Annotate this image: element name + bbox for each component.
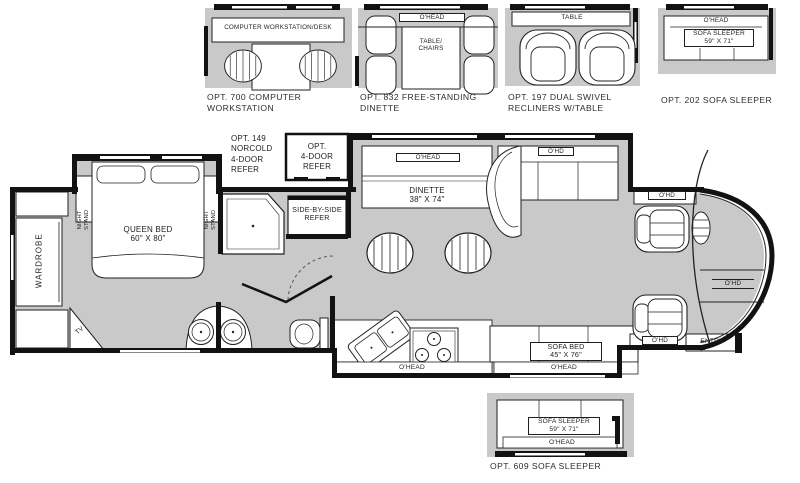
front-ohd-label: O'HD (712, 279, 754, 289)
sofa-bed-label: SOFA BED45" X 76" (530, 342, 602, 361)
opt832-ohead-label: O'HEAD (399, 13, 465, 22)
opt202-ohead-label: O'HEAD (676, 17, 756, 24)
queen-bed-label: QUEEN BED60" X 80" (103, 225, 193, 244)
side-by-side-refer-label: SIDE-BY-SIDEREFER (282, 206, 352, 223)
entry-label: ENTRY (690, 338, 734, 346)
wardrobe-label: WARDROBE (34, 221, 43, 301)
opt149-norcold-label: OPT. 149NORCOLD 4-DOORREFER (231, 134, 272, 176)
opt-202-caption: OPT. 202 SOFA SLEEPER (661, 95, 772, 106)
rv-floorplan-page: OPT. 700 COMPUTERWORKSTATION OPT. 832 FR… (0, 0, 800, 483)
passenger-ohd-label: O'HD (642, 336, 678, 345)
opt-197-caption: OPT. 197 DUAL SWIVELRECLINERS W/TABLE (508, 92, 612, 114)
opt202-sofa-label: SOFA SLEEPER59" X 71" (684, 29, 754, 47)
opt-700-computer-workstation-diagram (204, 4, 352, 90)
opt832-table-label: TABLE/CHAIRS (402, 38, 460, 53)
night-stand-left-label: NIGHTSTAND (77, 202, 91, 238)
opt-700-caption: OPT. 700 COMPUTERWORKSTATION (207, 92, 301, 114)
sofa-bed-ohead-label: O'HEAD (532, 364, 596, 372)
dinette-label: DINETTE38" X 74" (387, 186, 467, 205)
opt-832-caption: OPT. 832 FREE-STANDINGDINETTE (360, 92, 477, 114)
computer-desk-label: COMPUTER WORKSTATION/DESK (213, 24, 343, 31)
kitchen-ohead-label: O'HEAD (380, 364, 444, 372)
opt-609-caption: OPT. 609 SOFA SLEEPER (490, 461, 601, 472)
sofa-ohd-label: O'HD (538, 147, 574, 156)
driver-ohd-label: O'HD (648, 191, 686, 200)
night-stand-right-label: NIGHTSTAND (204, 202, 218, 238)
opt-4door-refer-label: OPT.4-DOORREFER (290, 138, 344, 176)
opt197-table-label: TABLE (515, 14, 629, 22)
dinette-ohead-label: O'HEAD (396, 153, 460, 162)
opt609-ohead-label: O'HEAD (530, 439, 594, 447)
opt609-sofa-label: SOFA SLEEPER59" X 71" (528, 417, 600, 435)
